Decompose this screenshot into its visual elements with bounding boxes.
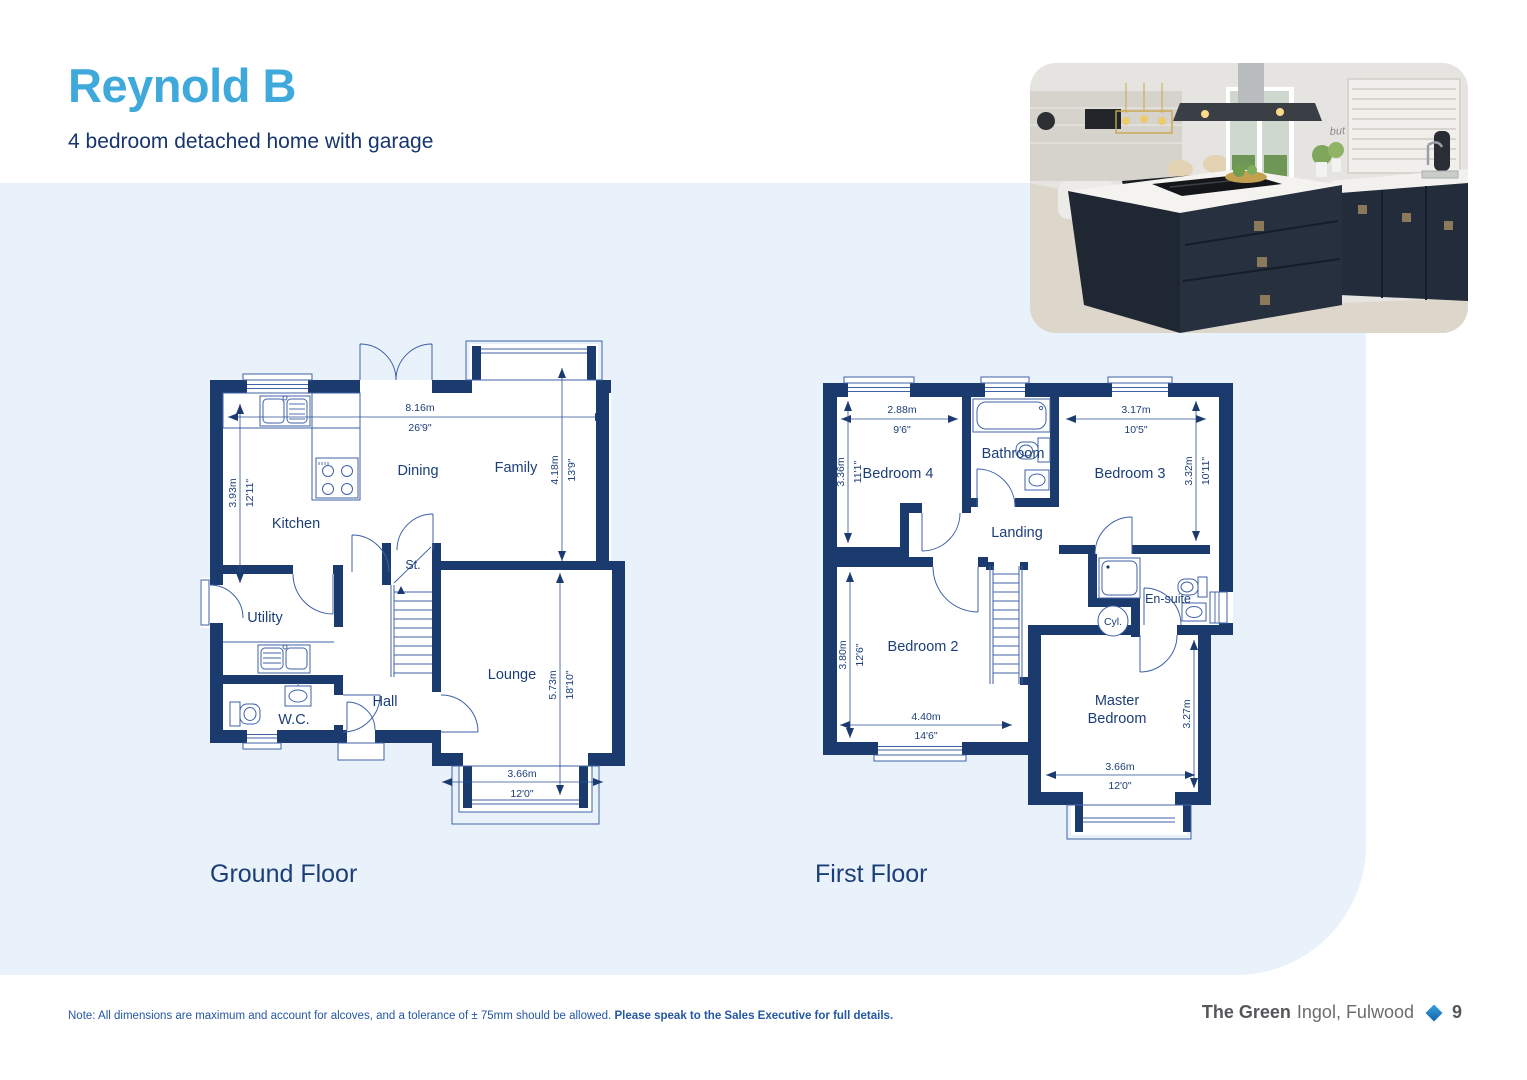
room-label-landing: Landing	[991, 525, 1043, 541]
bedroom2-window	[874, 755, 966, 761]
bedroom3-window	[1108, 377, 1172, 383]
room-label-utility: Utility	[247, 610, 283, 626]
svg-text:8.16m: 8.16m	[405, 402, 434, 414]
svg-text:3.27m: 3.27m	[1181, 699, 1193, 728]
kitchen-photo: but first, coffee	[1030, 63, 1468, 333]
bathroom-window	[981, 377, 1029, 383]
note-regular: Note: All dimensions are maximum and acc…	[68, 1010, 614, 1022]
dimensions-note: Note: All dimensions are maximum and acc…	[68, 1010, 893, 1022]
svg-text:9'6": 9'6"	[893, 424, 911, 436]
diamond-icon	[1425, 1004, 1442, 1021]
svg-text:3.17m: 3.17m	[1121, 404, 1150, 416]
room-label-bedroom2: Bedroom 2	[888, 639, 959, 655]
room-label-bathroom: Bathroom	[982, 446, 1045, 462]
french-door-right	[396, 344, 432, 380]
page-subtitle: 4 bedroom detached home with garage	[68, 130, 433, 154]
svg-text:14'6": 14'6"	[914, 730, 938, 742]
room-label-wc: W.C.	[278, 712, 309, 728]
room-label-bedroom4: Bedroom 4	[863, 466, 934, 482]
svg-text:12'0": 12'0"	[1108, 780, 1132, 792]
kitchen-sink-icon	[260, 396, 310, 426]
room-label-bedroom3: Bedroom 3	[1095, 466, 1166, 482]
svg-text:26'9": 26'9"	[408, 422, 432, 434]
wc-window	[243, 743, 281, 749]
room-label-hall: Hall	[373, 694, 398, 710]
french-door-left	[360, 344, 396, 380]
brochure-page: Reynold B 4 bedroom detached home with g…	[0, 0, 1527, 1080]
svg-text:13'9": 13'9"	[566, 458, 578, 482]
page-title: Reynold B	[68, 58, 296, 113]
note-bold: Please speak to the Sales Executive for …	[614, 1010, 893, 1022]
svg-text:12'6": 12'6"	[854, 643, 866, 667]
svg-text:12'11": 12'11"	[244, 479, 256, 508]
svg-text:18'10": 18'10"	[564, 670, 576, 699]
svg-text:4.18m: 4.18m	[549, 455, 561, 484]
page-number: 9	[1452, 1002, 1462, 1023]
cylinder-icon: Cyl.	[1098, 606, 1128, 636]
development-name: The Green	[1202, 1002, 1291, 1023]
room-label-dining: Dining	[397, 463, 438, 479]
svg-text:3.36m: 3.36m	[835, 457, 847, 486]
room-label-master-2: Bedroom	[1088, 711, 1147, 727]
svg-text:5.73m: 5.73m	[547, 670, 559, 699]
room-label-cylinder: Cyl.	[1104, 616, 1122, 628]
svg-text:12'0": 12'0"	[510, 788, 534, 800]
bedroom4-window	[844, 377, 914, 383]
svg-text:10'5": 10'5"	[1124, 424, 1148, 436]
room-label-family: Family	[495, 460, 538, 476]
room-label-ensuite: En-suite	[1145, 592, 1191, 606]
bath-icon	[973, 399, 1050, 432]
room-label-store: St.	[405, 558, 420, 572]
room-label-master-1: Master	[1095, 693, 1139, 709]
photo-island	[1068, 165, 1342, 333]
svg-text:3.32m: 3.32m	[1183, 456, 1195, 485]
svg-text:3.66m: 3.66m	[1105, 761, 1134, 773]
svg-text:11'1": 11'1"	[852, 460, 864, 483]
kitchen-window	[243, 374, 312, 380]
hob-icon	[316, 458, 358, 498]
svg-text:10'9": 10'9"	[1198, 702, 1210, 726]
room-label-lounge: Lounge	[488, 667, 536, 683]
page-footer: The Green Ingol, Fulwood 9	[1202, 1002, 1462, 1023]
first-floor-plan: Cyl. Bedroom 4	[810, 370, 1240, 850]
svg-text:4.40m: 4.40m	[911, 711, 940, 723]
svg-text:3.93m: 3.93m	[227, 478, 239, 507]
svg-text:3.66m: 3.66m	[507, 768, 536, 780]
development-location: Ingol, Fulwood	[1297, 1002, 1414, 1023]
kitchen-photo-scene: but first, coffee	[1030, 63, 1468, 333]
bathroom-basin-icon	[1025, 470, 1049, 490]
room-label-kitchen: Kitchen	[272, 516, 320, 532]
first-floor-title: First Floor	[815, 860, 928, 889]
photo-window	[1348, 79, 1460, 173]
svg-text:10'11": 10'11"	[1200, 457, 1212, 486]
ground-floor-plan: Kitchen Dining Family Utility W.C. Hall …	[200, 340, 630, 870]
utility-door-leaf	[201, 580, 209, 625]
wc-toilet-icon	[230, 702, 260, 726]
svg-text:2.88m: 2.88m	[887, 404, 916, 416]
ensuite-window	[1210, 592, 1227, 623]
ground-floor-title: Ground Floor	[210, 860, 357, 889]
svg-text:3.80m: 3.80m	[837, 640, 849, 669]
wc-basin-icon	[285, 683, 311, 706]
shower-icon	[1099, 558, 1140, 598]
